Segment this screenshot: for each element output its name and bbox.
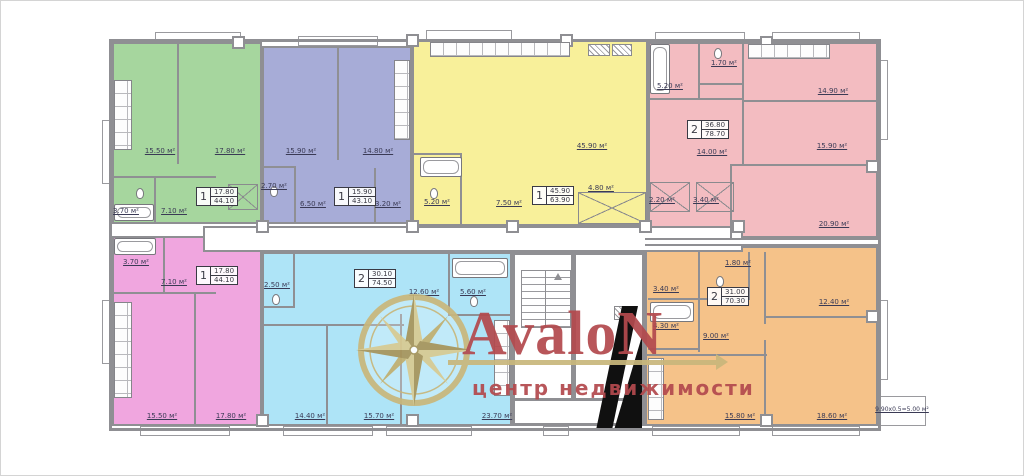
area-label: 14.90 м² [818,87,848,95]
living-area: 17.80 [211,267,237,276]
area-label: 15.90 м² [286,147,316,155]
rooms-count: 1 [335,188,349,205]
partition [698,42,700,100]
area-label: 18.60 м² [817,412,847,420]
kitchen-counter-icon [394,60,410,140]
living-area: 30.10 [369,270,395,279]
total-area: 63.90 [547,196,573,204]
area-label: 2.50 м² [264,281,290,289]
column [732,220,745,233]
rooms-count: 2 [355,270,369,287]
brand-tagline: центр недвижимости [472,376,755,400]
partition [700,83,744,85]
column [256,220,269,233]
total-area: 78.70 [702,130,728,138]
floor-plan: 15.50 м² 17.80 м² 3.70 м² 7.10 м² 15.90 … [0,0,1024,476]
area-label: 5.20 м² [424,198,450,206]
area-label: 3.70 м² [123,258,149,266]
partition [766,316,878,318]
apartment-info-purple: 1 15.9043.10 [334,187,376,206]
apartment-info-green: 1 17.8044.10 [196,187,238,206]
total-area: 44.10 [211,197,237,205]
column [256,414,269,427]
kitchen-counter-icon [114,80,132,150]
living-area: 17.80 [211,188,237,197]
apartment-info-blue: 2 30.1074.50 [354,269,396,288]
vent-shaft [612,44,632,56]
toilet-icon [714,48,722,59]
apartment-info-pink: 2 36.8078.70 [687,120,729,139]
area-label: 3.70 м² [113,207,139,215]
bathtub-icon [114,238,156,255]
area-label: 14.00 м² [697,148,727,156]
area-label: 20.90 м² [819,220,849,228]
area-label: 15.90 м² [817,142,847,150]
area-label: 3.20 м² [375,200,401,208]
bathtub-icon [420,157,462,177]
living-area: 15.90 [349,188,375,197]
partition [744,100,878,102]
total-area: 43.10 [349,197,375,205]
column [866,160,879,173]
living-area: 45.90 [547,187,573,196]
partition [194,294,196,426]
partition [764,252,766,324]
area-label: 14.80 м² [363,147,393,155]
partition [742,42,744,166]
area-label: 45.90 м² [577,142,607,150]
area-label: 14.40 м² [295,412,325,420]
area-label-balcony: 9.90x0.5=5.00 м² [875,406,929,414]
area-label: 2.20 м² [649,196,675,204]
toilet-icon [136,188,144,199]
column [506,220,519,233]
rooms-count: 1 [197,267,211,284]
logo-underline-tip [716,354,728,370]
area-label: 17.80 м² [216,412,246,420]
total-area: 74.50 [369,279,395,287]
column [406,34,419,47]
partition [293,252,295,308]
area-label: 12.40 м² [819,298,849,306]
closet-hatch [578,192,646,224]
rooms-count: 1 [197,188,211,205]
partition [262,306,295,308]
area-label: 7.10 м² [161,207,187,215]
total-area: 44.10 [211,276,237,284]
avalon-watermark: AvaloN центр недвижимости [352,290,762,416]
partition [177,42,179,164]
column [232,36,245,49]
column [639,220,652,233]
area-label: 1.70 м² [711,59,737,67]
partition [648,98,744,100]
area-label: 3.40 м² [693,196,719,204]
area-label: 4.80 м² [588,184,614,192]
partition [337,46,339,160]
partition [154,178,156,224]
toilet-icon [716,276,724,287]
bathtub-icon [452,258,508,278]
kitchen-counter-icon [114,302,132,398]
compass-rose-icon [352,290,476,414]
column [406,220,419,233]
partition [262,166,296,168]
partition [730,164,878,166]
partition [412,153,462,155]
area-label: 15.50 м² [147,412,177,420]
brand-name: AvaloN [462,304,663,364]
area-label: 17.80 м² [215,147,245,155]
partition [112,176,216,178]
kitchen-counter-icon [430,42,570,57]
area-label: 1.80 м² [725,259,751,267]
kitchen-counter-icon [748,44,830,59]
partition [326,324,328,426]
area-label: 7.10 м² [161,278,187,286]
rooms-count: 1 [533,187,547,204]
area-label: 15.50 м² [145,147,175,155]
apartment-info-magenta: 1 17.8044.10 [196,266,238,285]
vent-shaft [588,44,610,56]
area-label: 5.20 м² [657,82,683,90]
column [866,310,879,323]
area-label: 7.50 м² [496,199,522,207]
area-label: 6.50 м² [300,200,326,208]
apartment-info-yellow: 1 45.9063.90 [532,186,574,205]
rooms-count: 2 [688,121,702,138]
partition [294,166,296,224]
toilet-icon [272,294,280,305]
living-area: 36.80 [702,121,728,130]
area-label: 2.70 м² [261,182,287,190]
